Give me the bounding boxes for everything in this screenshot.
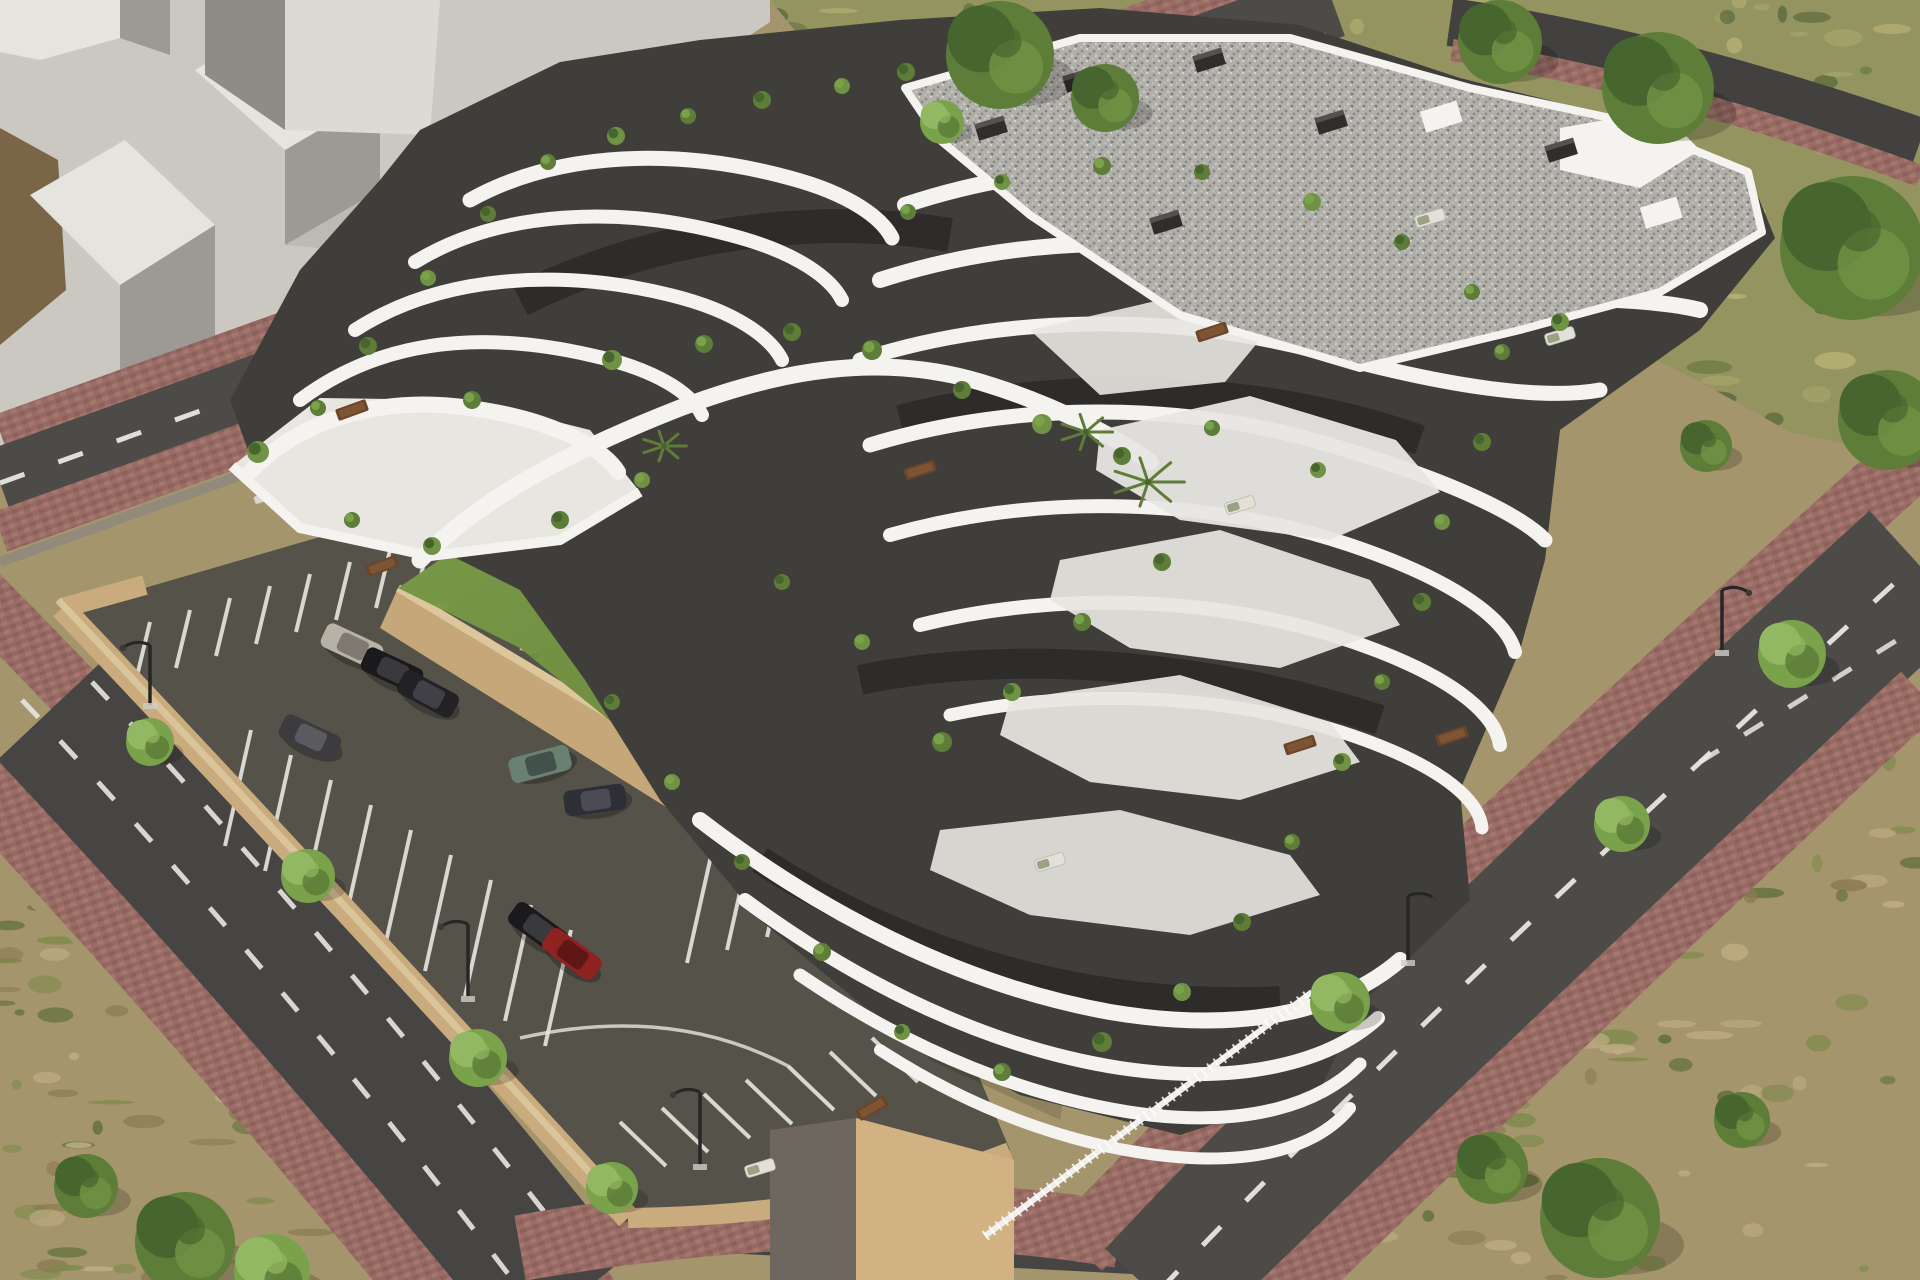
terrace-plant <box>607 127 625 145</box>
terrace-plant <box>551 511 569 529</box>
terrace-plant <box>994 174 1010 190</box>
terrace-plant <box>734 854 750 870</box>
terrace-plant <box>894 1024 910 1040</box>
terrace-plant <box>1113 447 1131 465</box>
terrace-plant <box>854 634 870 650</box>
terrace-plant <box>695 335 713 353</box>
terrace-plant <box>604 694 620 710</box>
terrace-plant <box>1374 674 1390 690</box>
terrace-plant <box>344 512 360 528</box>
terrace-plant <box>1073 613 1091 631</box>
terrace-plant <box>1333 753 1351 771</box>
terrace-plant <box>1494 344 1510 360</box>
terrace-plant <box>1092 1032 1112 1052</box>
terrace-plant <box>1284 834 1300 850</box>
terrace-plant <box>993 1063 1011 1081</box>
terrace-plant <box>1473 433 1491 451</box>
terrace-plant <box>680 108 696 124</box>
terrace-plant <box>1464 284 1480 300</box>
terrace-plant <box>463 391 481 409</box>
terrace-plant <box>310 400 326 416</box>
terrace-plant <box>834 78 850 94</box>
terrace-plant <box>480 206 496 222</box>
terrace-plant <box>774 574 790 590</box>
terrace-plant <box>1551 313 1569 331</box>
terrace-plant <box>1204 420 1220 436</box>
terrace-plant <box>540 154 556 170</box>
aerial-render-stage <box>0 0 1920 1280</box>
terrace-plant <box>953 381 971 399</box>
terrace-plant <box>897 63 915 81</box>
terrace-plant <box>813 943 831 961</box>
terrace-plant <box>1303 193 1321 211</box>
terrace-plant <box>862 340 882 360</box>
tree <box>1780 176 1920 320</box>
terrace-plant <box>932 732 952 752</box>
terrace-plant <box>1194 164 1210 180</box>
terrace-plant <box>1093 157 1111 175</box>
terrace-plant <box>664 774 680 790</box>
terrace-plant <box>1032 414 1052 434</box>
terrace-plant <box>1413 593 1431 611</box>
terrace-plant <box>1233 913 1251 931</box>
terrace-plant <box>1310 462 1326 478</box>
terrace-plant <box>753 91 771 109</box>
terrace-plant <box>1434 514 1450 530</box>
terrace-plant <box>1394 234 1410 250</box>
terrace-plant <box>900 204 916 220</box>
aerial-render <box>0 0 1920 1280</box>
terrace-plant <box>1153 553 1171 571</box>
terrace-plant <box>783 323 801 341</box>
terrace-plant <box>359 337 377 355</box>
terrace-plant <box>420 270 436 286</box>
terrace-plant <box>247 441 269 463</box>
terrace-plant <box>423 537 441 555</box>
terrace-plant <box>1003 683 1021 701</box>
terrace-plant <box>1173 983 1191 1001</box>
terrace-plant <box>602 350 622 370</box>
terrace-plant <box>634 472 650 488</box>
